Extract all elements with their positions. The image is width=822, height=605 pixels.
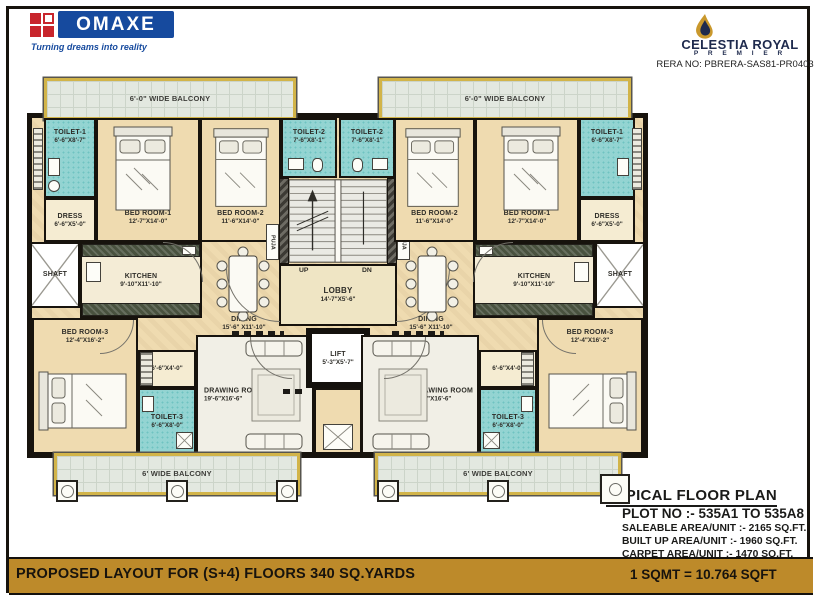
logo-square-outline [43, 13, 54, 24]
wc-fixture [48, 158, 60, 176]
stair-side-wall [279, 178, 289, 264]
room-dims: 12'-7"X14'-0" [129, 218, 167, 226]
wardrobe [521, 352, 534, 386]
room-name: DRESS [57, 212, 82, 221]
wc-fixture [352, 158, 363, 172]
balcony-label: 6' WIDE BALCONY [463, 469, 533, 479]
logo-square [43, 26, 54, 37]
room-dress-left: DRESS 6'-6"X5'-0" [44, 198, 96, 242]
proposed-layout-text: PROPOSED LAYOUT FOR (S+4) FLOORS 340 SQ.… [16, 566, 415, 582]
room-name: LOBBY [324, 286, 353, 296]
room-dims: 6'-6"X8'-7" [591, 137, 622, 145]
builtup-area: BUILT UP AREA/UNIT :- 1960 SQ.FT. [622, 536, 797, 547]
wardrobe [33, 128, 43, 190]
room-dims: 6'-6"X8'-0" [492, 422, 523, 430]
duct-box [323, 424, 353, 450]
basin-fixture [288, 158, 304, 170]
room-name: TOILET-2 [351, 128, 383, 137]
shower-tray [176, 432, 193, 449]
column-marker [487, 480, 509, 502]
room-dims: 9'-10"X11'-10" [513, 281, 555, 289]
bed-icon [545, 356, 637, 446]
saleable-area: SALEABLE AREA/UNIT :- 2165 SQ.FT. [622, 523, 806, 534]
column-marker [166, 480, 188, 502]
room-dims: 6'-6"X5'-0" [54, 221, 85, 229]
stove-icon [574, 262, 589, 282]
bed-icon [404, 126, 462, 210]
room-name: DRESS [594, 212, 619, 221]
room-shaft-left: SHAFT [30, 242, 80, 308]
room-dims: 6'-6"X8'-0" [151, 422, 182, 430]
shower-cross-icon [484, 433, 499, 448]
room-dress-right: DRESS 6'-6"X5'-0" [579, 198, 635, 242]
wc-fixture [142, 396, 154, 412]
room-shaft-right: SHAFT [595, 242, 645, 308]
shower-tray [483, 432, 500, 449]
kitchen-counter [475, 303, 593, 316]
column-marker [600, 474, 630, 504]
balcony-label: 6'-0" WIDE BALCONY [465, 94, 546, 104]
room-name: KITCHEN [125, 272, 158, 281]
room-dims: 7'-6"X8'-1" [293, 137, 324, 145]
room-name: KITCHEN [518, 272, 551, 281]
balcony-top-right: 6'-0" WIDE BALCONY [379, 78, 631, 120]
room-dims: 6'-6"X5'-0" [591, 221, 622, 229]
balcony-label: 6'-0" WIDE BALCONY [130, 94, 211, 104]
floor-plan-page: OMAXE Turning dreams into reality CELEST… [0, 0, 822, 605]
room-dims: 6'-6"X8'-7" [54, 137, 85, 145]
column-marker [377, 480, 399, 502]
room-name: SHAFT [608, 270, 632, 279]
room-dims: 12'-4"X16'-2" [571, 337, 609, 345]
basin-fixture [372, 158, 388, 170]
dn-label: DN [362, 267, 372, 274]
wc-fixture [617, 158, 629, 176]
room-dims: 9'-10"X11'-10" [120, 281, 162, 289]
room-dims: 12'-7"X14'-0" [508, 218, 546, 226]
logo-square [30, 26, 41, 37]
basin-fixture [48, 180, 60, 192]
up-label: UP [299, 267, 308, 274]
staircase [289, 178, 387, 264]
balcony-label: 6' WIDE BALCONY [142, 469, 212, 479]
room-name: BED ROOM-2 [217, 209, 264, 218]
room-dims: 6'-6''X4'-0'' [492, 365, 523, 373]
omaxe-wordmark: OMAXE [58, 11, 174, 38]
column-marker [276, 480, 298, 502]
column-marker [56, 480, 78, 502]
omaxe-logo-icon [30, 13, 54, 37]
bed-icon [38, 356, 130, 446]
balcony-top-left: 6'-0" WIDE BALCONY [44, 78, 296, 120]
room-name: TOILET-1 [54, 128, 86, 137]
shower-cross-icon [177, 433, 192, 448]
kitchen-counter [82, 303, 200, 316]
typical-floor-plan-title: TYPICAL FLOOR PLAN [606, 487, 777, 507]
room-dims: 12'-4"X16'-2" [66, 337, 104, 345]
rera-number: RERA NO: PBRERA-SAS81-PR0403 [650, 59, 820, 70]
plot-number: PLOT NO :- 535A1 TO 535A8 [622, 506, 804, 521]
unit-conversion-text: 1 SQMT = 10.764 SQFT [630, 567, 777, 582]
room-name: BED ROOM-2 [411, 209, 458, 218]
stove-icon [86, 262, 101, 282]
project-subtitle: P R E M I E R [660, 50, 820, 57]
room-lobby: LOBBY 14'-7"X5'-6" [279, 264, 397, 326]
room-dims: 7'-6"X8'-1" [351, 137, 382, 145]
wc-fixture [312, 158, 323, 172]
logo-square [30, 13, 41, 24]
puja-niche: PUJA [266, 224, 279, 260]
room-dims: 6'-6''X4'-0'' [151, 365, 182, 373]
room-name: TOILET-1 [591, 128, 623, 137]
room-dims: 5'-3"X5'-7" [322, 359, 353, 367]
room-name: SHAFT [43, 270, 67, 279]
wc-fixture [521, 396, 533, 412]
room-name: TOILET-3 [151, 413, 183, 422]
room-name: TOILET-2 [293, 128, 325, 137]
room-name: TOILET-3 [492, 413, 524, 422]
bed-icon [500, 126, 562, 212]
room-dims: 11'-6"X14'-0" [415, 218, 453, 226]
wardrobe [140, 352, 153, 386]
bed-icon [112, 126, 174, 212]
wardrobe [632, 128, 642, 190]
dining-table-icon [403, 246, 461, 322]
bed-icon [212, 126, 270, 210]
brand-tagline: Turning dreams into reality [31, 42, 147, 52]
room-dims: 14'-7"X5'-6" [321, 296, 356, 304]
room-name: LIFT [330, 350, 346, 359]
dimension-dash-line [283, 389, 305, 394]
room-dims: 11'-6"X14'-0" [221, 218, 259, 226]
duct-cross-icon [324, 425, 352, 449]
